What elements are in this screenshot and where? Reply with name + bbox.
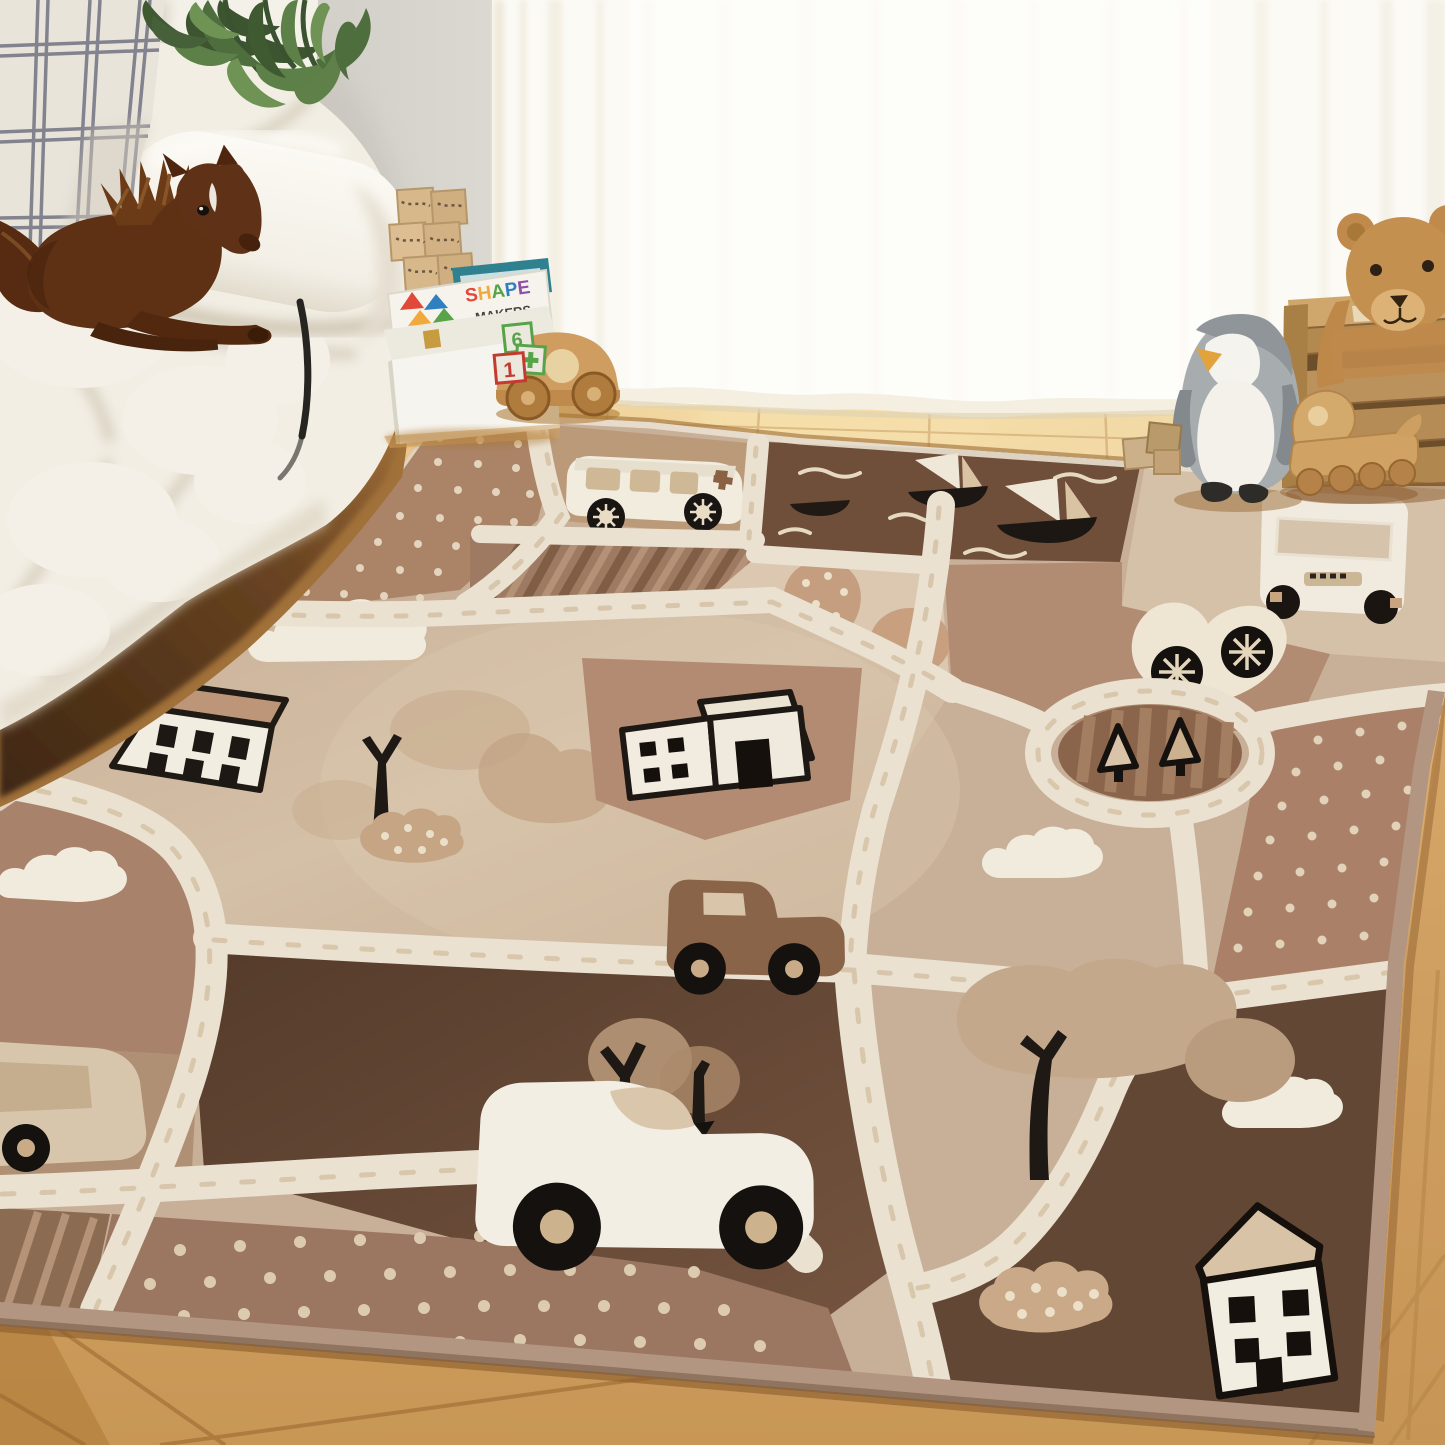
svg-text:1: 1 — [503, 359, 517, 383]
